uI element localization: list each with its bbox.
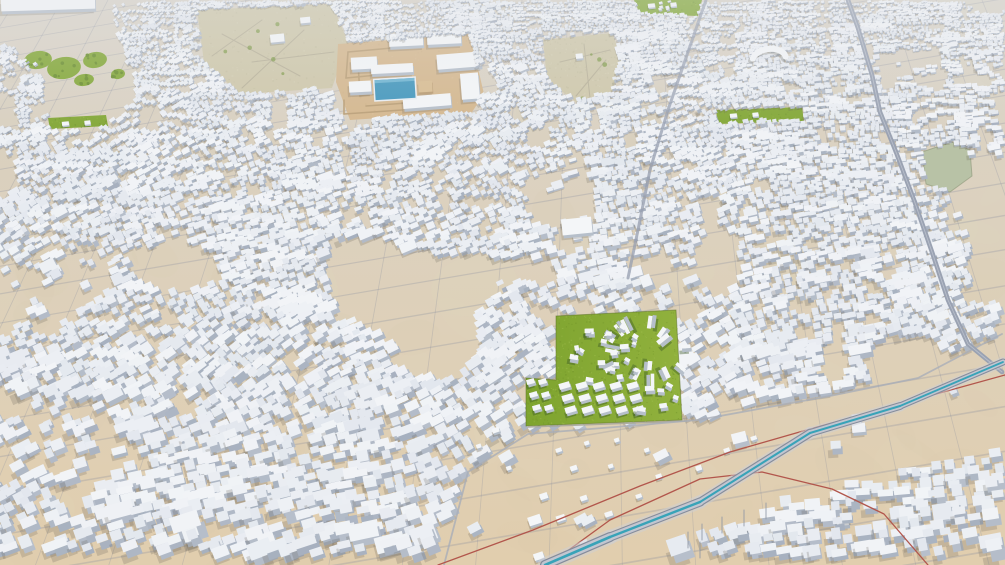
city-aerial-render [0, 0, 1005, 565]
map-canvas [0, 0, 1005, 565]
